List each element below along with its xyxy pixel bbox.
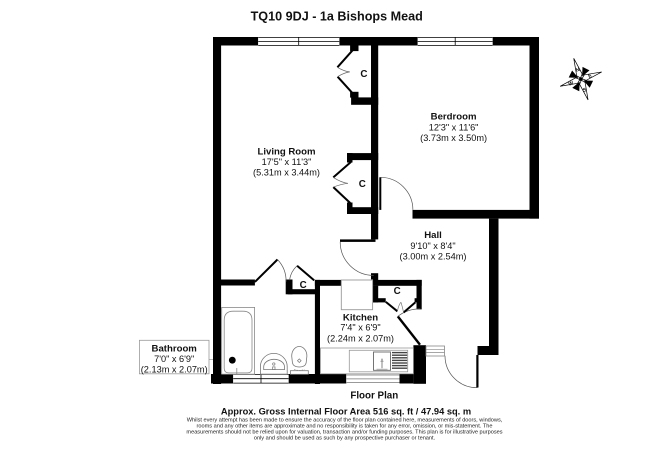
svg-text:(5.31m x 3.44m): (5.31m x 3.44m) <box>253 167 320 177</box>
svg-text:7'4" x 6'9": 7'4" x 6'9" <box>340 322 380 332</box>
svg-text:C: C <box>300 280 307 291</box>
svg-text:C: C <box>360 69 367 80</box>
svg-text:Floor Plan: Floor Plan <box>350 391 398 402</box>
svg-text:(2.13m x 2.07m): (2.13m x 2.07m) <box>141 364 208 374</box>
svg-text:only and should be used as suc: only and should be used as such by any p… <box>254 435 436 441</box>
svg-text:(2.24m x 2.07m): (2.24m x 2.07m) <box>327 333 394 343</box>
svg-text:17'5" x 11'3": 17'5" x 11'3" <box>262 157 312 167</box>
svg-text:(3.73m x 3.50m): (3.73m x 3.50m) <box>420 133 487 143</box>
svg-text:7'0" x 6'9": 7'0" x 6'9" <box>154 354 194 364</box>
svg-text:C: C <box>359 179 366 190</box>
svg-text:Approx. Gross Internal Floor A: Approx. Gross Internal Floor Area 516 sq… <box>221 406 471 416</box>
svg-text:9'10" x 8'4": 9'10" x 8'4" <box>410 241 455 251</box>
svg-text:12'3" x 11'6": 12'3" x 11'6" <box>429 122 479 132</box>
svg-text:TQ10 9DJ - 1a Bishops Mead: TQ10 9DJ - 1a Bishops Mead <box>251 9 423 23</box>
svg-text:C: C <box>394 286 401 297</box>
svg-text:Hall: Hall <box>424 230 442 241</box>
svg-text:Bathroom: Bathroom <box>152 343 197 354</box>
svg-text:(3.00m x 2.54m): (3.00m x 2.54m) <box>400 252 467 262</box>
svg-text:Berdroom: Berdroom <box>431 111 477 122</box>
